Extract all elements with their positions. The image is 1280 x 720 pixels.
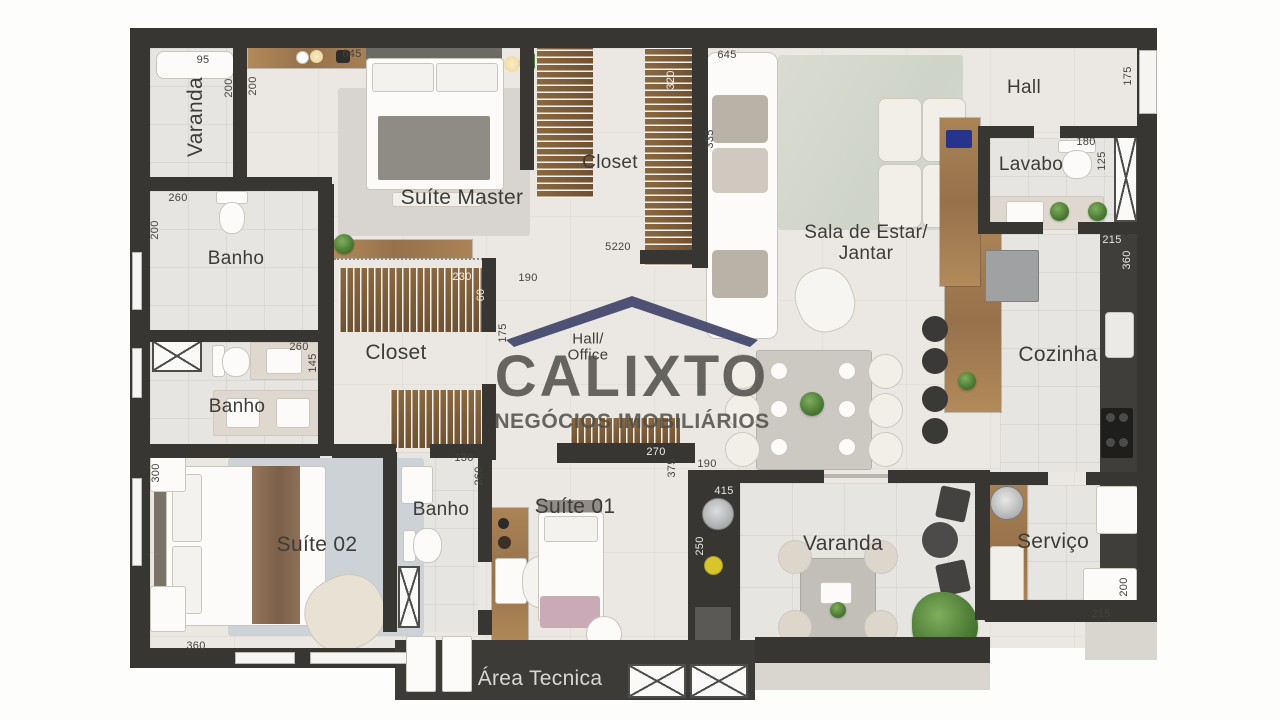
plate-3 xyxy=(770,438,788,456)
condenser-2 xyxy=(690,664,748,698)
stool-2 xyxy=(922,348,948,374)
sofa-cushion-1 xyxy=(712,95,768,143)
room-label-varanda-top: Varanda xyxy=(184,77,208,157)
dim-suite01-h: 375 xyxy=(666,458,678,477)
wall xyxy=(130,28,1157,48)
burner-3 xyxy=(1106,438,1115,447)
wall xyxy=(233,48,247,184)
lavabo-toilet-bowl xyxy=(1062,150,1092,179)
room-label-cozinha: Cozinha xyxy=(1018,343,1097,367)
room-label-banho-upper: Banho xyxy=(208,248,264,270)
dim-banho-lower-w: 260 xyxy=(289,341,308,353)
wall xyxy=(150,444,320,458)
room-label-suite-01: Suíte 01 xyxy=(535,495,616,519)
burner-4 xyxy=(1119,438,1128,447)
dim-varanda-b-w: 190 xyxy=(697,458,716,470)
banho3-toilet-bowl xyxy=(413,528,442,563)
dining-chair-2 xyxy=(725,393,760,428)
ledge xyxy=(1085,622,1157,660)
dim-lavabo-w: 180 xyxy=(1076,136,1095,148)
dim-hall-office-w: 190 xyxy=(518,272,537,284)
burner-2 xyxy=(1119,413,1128,422)
plate-1 xyxy=(770,362,788,380)
lavabo-plant-2 xyxy=(1088,202,1107,221)
wall xyxy=(975,470,990,620)
dim-closet-top-l: 320 xyxy=(665,70,677,89)
window xyxy=(235,652,295,664)
room-label-sala-line1: Sala de Estar/ xyxy=(804,222,928,244)
room-label-closet-mid: Closet xyxy=(365,341,426,365)
banho1-sink-right xyxy=(276,398,310,428)
dim-cozinha-w: 215 xyxy=(1102,234,1121,246)
wall xyxy=(478,610,492,635)
dim-banho3-w: 130 xyxy=(454,452,473,464)
servico-sink xyxy=(1096,486,1138,534)
room-label-closet-top: Closet xyxy=(582,152,638,174)
room-label-banho-suite01: Banho xyxy=(413,499,469,521)
sofa-cushion-3 xyxy=(712,250,768,298)
wall xyxy=(150,177,332,191)
plate-6 xyxy=(838,438,856,456)
dim-varanda-b-h: 250 xyxy=(694,536,706,555)
window xyxy=(132,252,142,310)
dim-banho-upper-w: 260 xyxy=(168,192,187,204)
wall xyxy=(1137,28,1157,625)
banho2-shower-glass xyxy=(152,340,202,372)
room-label-suite-02: Suíte 02 xyxy=(277,533,358,557)
dim-varanda-top-l: 200 xyxy=(223,78,235,97)
closet-plant xyxy=(334,234,354,254)
plate-2 xyxy=(770,400,788,418)
sliding-door-track xyxy=(334,258,490,260)
dining-plant xyxy=(800,392,824,416)
dim-sofa-l: 645 xyxy=(717,49,736,61)
room-label-hall-office-line1: Hall/ xyxy=(572,331,604,348)
gas-valve xyxy=(704,556,723,575)
dim-suite01-w: 270 xyxy=(646,446,665,458)
room-label-banho-lower: Banho xyxy=(209,396,265,418)
dining-chair-4 xyxy=(868,354,903,389)
suite02-nightstand-2 xyxy=(150,586,186,632)
dim-closet-mid-w: 230 xyxy=(452,271,471,283)
bistro-table xyxy=(922,522,958,558)
wall xyxy=(692,40,708,268)
fridge xyxy=(985,250,1039,302)
room-label-hall-office-line2: Office xyxy=(568,347,609,364)
floor-plan: Varanda Suíte Master Closet Hall Lavabo … xyxy=(0,0,1280,720)
banho3-shower-glass xyxy=(398,566,420,628)
dim-suite02-w: 360 xyxy=(186,640,205,652)
wall xyxy=(1086,472,1137,485)
master-lamp xyxy=(504,56,520,72)
lounge-chair-1 xyxy=(878,98,922,162)
dining-chair-1 xyxy=(725,354,760,389)
wall xyxy=(888,470,975,483)
wall xyxy=(740,470,824,483)
dim-lavabo-h: 125 xyxy=(1096,151,1108,170)
laundry-tub xyxy=(702,498,734,530)
plate-5 xyxy=(838,400,856,418)
wall xyxy=(318,184,334,456)
wall xyxy=(985,600,1157,622)
suite01-pillow xyxy=(544,516,598,542)
dim-hall-office-h: 175 xyxy=(497,323,509,342)
closet-mid-wardrobe-bottom xyxy=(388,388,486,450)
wall xyxy=(383,452,397,632)
room-label-varanda-bottom: Varanda xyxy=(803,532,883,556)
entrance-door xyxy=(1139,50,1157,114)
varanda-table-plant xyxy=(830,602,846,618)
dim-master-wall: 200 xyxy=(247,76,259,95)
sliding-door xyxy=(824,474,888,478)
ledge xyxy=(755,663,990,690)
dim-closet-mid-d: 60 xyxy=(475,289,487,302)
master-pillow-left xyxy=(372,63,434,92)
sun-lounger xyxy=(156,51,234,79)
master-pillow-right xyxy=(436,63,498,92)
stool-3 xyxy=(922,386,948,412)
banho1-toilet-bowl xyxy=(219,202,245,234)
shaft-hatch xyxy=(1114,134,1138,222)
dim-master-top: 645 xyxy=(342,48,361,60)
room-label-sala-line2: Jantar xyxy=(839,243,894,265)
burner-1 xyxy=(1106,413,1115,422)
dresser-lamp xyxy=(310,50,323,63)
dim-banho-lower-h: 145 xyxy=(307,353,319,372)
dim-banho3-h: 260 xyxy=(473,466,485,485)
sofa-cushion-2 xyxy=(712,148,768,193)
wall xyxy=(1078,222,1137,234)
stool-4 xyxy=(922,418,948,444)
condenser-1 xyxy=(628,664,686,698)
closet-top-wardrobe-left xyxy=(535,44,595,200)
varanda-tray xyxy=(820,582,852,604)
banho2-toilet-bowl xyxy=(222,347,250,377)
room-label-lavabo: Lavabo xyxy=(999,154,1063,176)
dim-servico-w: 215 xyxy=(1091,608,1110,620)
desk-item-1 xyxy=(498,518,509,529)
stool-1 xyxy=(922,316,948,342)
wall xyxy=(755,637,990,663)
room-label-suite-master: Suíte Master xyxy=(401,186,524,210)
plate-4 xyxy=(838,362,856,380)
lounge-chair-3 xyxy=(878,164,922,228)
island-plant-2 xyxy=(958,372,976,390)
lavabo-plant-1 xyxy=(1050,202,1069,221)
dresser-decor xyxy=(296,51,309,64)
dim-suite02-h: 300 xyxy=(150,463,162,482)
dim-servico-h: 200 xyxy=(1118,577,1130,596)
wall xyxy=(990,472,1048,485)
washer xyxy=(990,486,1024,520)
ac-unit-1 xyxy=(406,636,436,692)
room-label-area-tecnica: Área Tecnica xyxy=(478,667,603,691)
room-label-hall: Hall xyxy=(1007,77,1041,99)
dining-chair-6 xyxy=(868,432,903,467)
wall xyxy=(482,384,496,460)
dim-varanda-b-top: 415 xyxy=(714,485,733,497)
dim-banho-upper-h: 200 xyxy=(149,220,161,239)
wall xyxy=(978,126,990,234)
kitchen-sink xyxy=(1105,312,1134,358)
dim-varanda-top-w: 95 xyxy=(197,54,210,66)
dim-entrance-h: 175 xyxy=(1122,66,1134,85)
ac-unit-2 xyxy=(442,636,472,692)
wall xyxy=(1060,126,1137,138)
dining-chair-5 xyxy=(868,393,903,428)
wall xyxy=(985,222,1043,234)
wall xyxy=(520,48,534,170)
window xyxy=(132,348,142,398)
master-bed-throw xyxy=(378,116,490,180)
hall-doormat xyxy=(946,130,972,148)
window xyxy=(132,478,142,566)
window xyxy=(310,652,407,664)
room-label-servico: Serviço xyxy=(1017,530,1089,554)
dim-sofa-d: 335 xyxy=(704,129,716,148)
dining-chair-3 xyxy=(725,432,760,467)
wall xyxy=(640,250,696,264)
dim-cozinha-h: 360 xyxy=(1121,250,1133,269)
desk-item-2 xyxy=(498,536,511,549)
dim-closet-bottom: 5220 xyxy=(605,241,631,253)
